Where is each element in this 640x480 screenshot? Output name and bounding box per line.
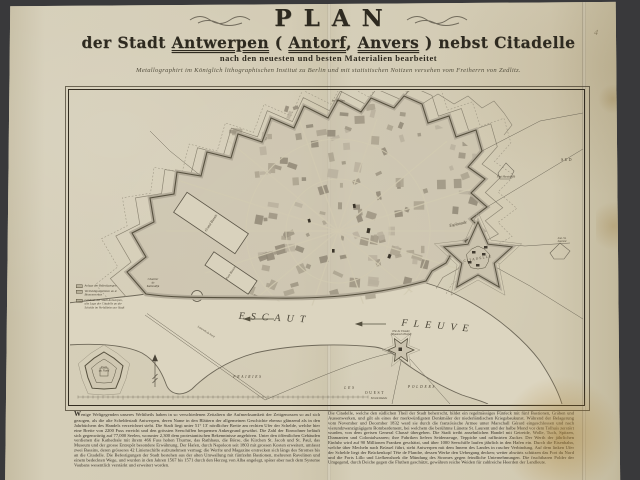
city-block — [342, 161, 346, 165]
city-block — [267, 134, 272, 139]
city-block — [400, 112, 406, 117]
paper-stain — [598, 84, 628, 114]
citadel-barrack — [472, 251, 476, 254]
fort-du-nord — [78, 345, 129, 395]
city-block — [340, 112, 349, 116]
legend-label: Gebäude der Stadt Antwerpen, alte Lage d… — [85, 298, 125, 309]
citadel-barrack — [468, 261, 472, 264]
notes-column-2: Die Citadelle, welche den südlichen Thei… — [328, 411, 574, 468]
title-word: Antorf — [288, 33, 346, 52]
city-block — [452, 206, 459, 214]
city-block — [371, 136, 379, 145]
title-word: ( — [269, 33, 288, 52]
map-graphic — [70, 91, 583, 404]
city-block — [327, 168, 339, 178]
title-block: PLAN der Stadt Antwerpen ( Antorf, Anver… — [70, 5, 587, 74]
statistical-notes: Wenige Weltgegenden unseres Welttheils h… — [74, 411, 574, 480]
legend-item: Anlage der Befestigungen — [76, 284, 161, 288]
paper-sheet: PLAN der Stadt Antwerpen ( Antorf, Anver… — [0, 0, 640, 480]
title-line2: der Stadt Antwerpen ( Antorf, Anvers ) n… — [70, 33, 587, 52]
city-block — [338, 202, 342, 209]
map-title: PLAN — [262, 5, 394, 32]
city-block — [368, 277, 379, 287]
title-subtitle: nach den neuesten und besten Materialien… — [70, 53, 587, 63]
city-block — [255, 171, 260, 178]
title-imprint: Metallographirt im Königlich lithographi… — [70, 67, 587, 74]
citadel-barrack — [482, 253, 486, 256]
title-main-row: PLAN — [70, 5, 587, 32]
city-block — [284, 106, 289, 113]
legend-item: Gebäude der Stadt Antwerpen, alte Lage d… — [76, 298, 161, 309]
handwritten-mark: 4 — [594, 28, 599, 37]
city-block — [458, 152, 465, 159]
flourish-right-icon — [405, 12, 469, 26]
city-block — [412, 258, 418, 264]
city-block — [327, 130, 335, 137]
city-block — [421, 246, 425, 253]
title-word: der Stadt — [82, 33, 172, 52]
flourish-left-icon — [188, 12, 252, 26]
title-word: Antwerpen — [172, 33, 269, 52]
scanned-map-photo: PLAN der Stadt Antwerpen ( Antorf, Anver… — [0, 0, 640, 480]
city-block — [417, 133, 421, 137]
legend-swatch-icon — [76, 290, 83, 294]
dyke-tick-line — [78, 396, 368, 400]
city-block — [354, 116, 364, 124]
legend-label: Vertheidigungslinien an d. Binnenwerken — [85, 290, 118, 297]
city-block — [343, 143, 350, 150]
city-block — [340, 183, 343, 188]
city-block — [295, 133, 302, 140]
city-block — [437, 180, 446, 190]
legend-item: Vertheidigungslinien an d. Binnenwerken — [76, 290, 161, 297]
map-legend: Anlage der BefestigungenVertheidigungsli… — [76, 284, 161, 311]
fort-nord-rampart — [85, 352, 123, 389]
city-block — [374, 235, 378, 242]
legend-swatch-icon — [76, 299, 83, 303]
lunette-st-laurent — [550, 243, 570, 259]
city-block — [302, 177, 306, 181]
citadel-barrack — [476, 264, 480, 267]
map-area: ESCAUTFLEUVECITADELLEEsplanadeGrand Bass… — [70, 91, 583, 404]
city-block — [454, 179, 462, 188]
title-word: Anvers — [358, 33, 419, 52]
city-block — [292, 177, 299, 185]
citadel-barrack — [484, 246, 488, 249]
notes-column-1: Wenige Weltgegenden unseres Welttheils h… — [74, 411, 320, 468]
city-block — [259, 146, 267, 155]
title-word: , — [346, 33, 358, 52]
legend-label: Anlage der Befestigungen — [85, 284, 117, 288]
tdf-building — [399, 348, 403, 352]
compass-needle-icon — [153, 355, 158, 387]
title-word: ) nebst Citadelle — [419, 33, 575, 52]
legend-swatch-icon — [76, 285, 83, 289]
city-block — [264, 218, 268, 222]
notes-columns: Wenige Weltgegenden unseres Welttheils h… — [74, 411, 574, 468]
paper-stain — [596, 196, 632, 256]
